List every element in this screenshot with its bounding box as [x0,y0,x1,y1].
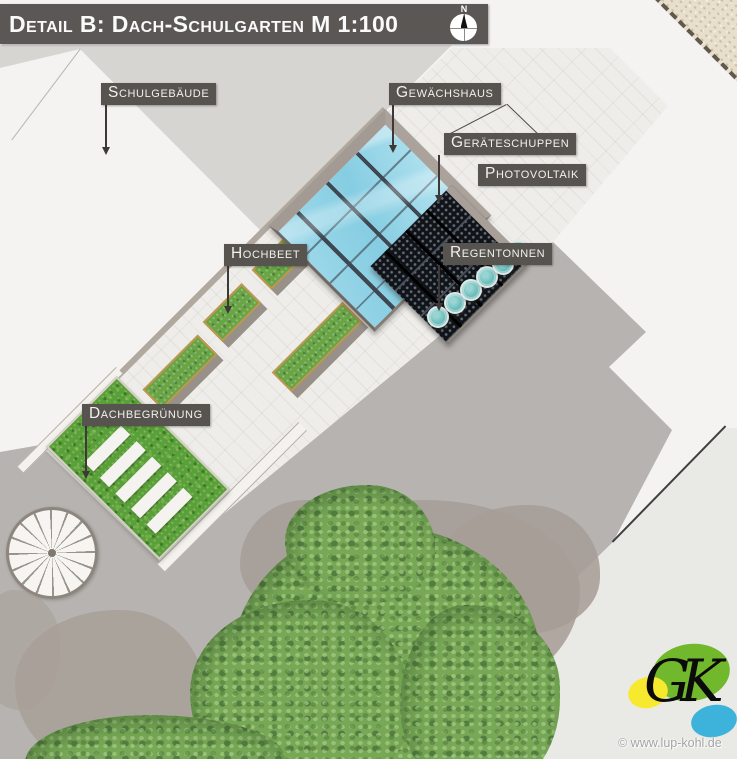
north-compass-icon: N [447,5,481,43]
label-regentonnen: Regentonnen [443,243,552,265]
schulgebaeude-arrow [105,105,107,152]
page-title: Detail B: Dach-Schulgarten M 1:100 [0,11,398,38]
label-photovoltaik: Photovoltaik [478,164,586,186]
gewaechshaus-arrow [392,104,394,150]
label-dachbegruenung: Dachbegrünung [82,404,210,426]
geraeteschuppen-arrow [438,155,440,200]
copyright-text: © www.lup-kohl.de [618,736,722,750]
roof-garden-plan: Schulgebäude Gewächshaus Geräteschuppen … [0,0,737,759]
label-hochbeet: Hochbeet [224,244,307,266]
regentonnen-arrow [438,265,440,308]
tree-canopy [285,485,435,605]
title-bar: Detail B: Dach-Schulgarten M 1:100 [0,4,488,44]
label-gewaechshaus: Gewächshaus [389,83,501,105]
north-label: N [461,4,468,14]
label-schulgebaeude: Schulgebäude [101,83,216,105]
spiral-staircase [6,507,98,599]
dachbegruenung-arrow [85,426,87,476]
hochbeet-arrow [227,266,229,311]
logo-gk-letters: GK [644,652,737,710]
label-geraeteschuppen: Geräteschuppen [444,133,576,155]
